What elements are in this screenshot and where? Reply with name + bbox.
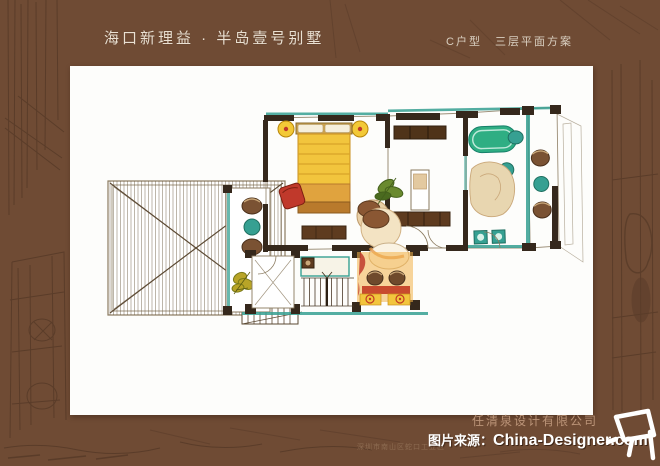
balcony-table (534, 176, 550, 192)
plan-card (70, 66, 593, 415)
staircase (301, 257, 354, 306)
bathroom (468, 125, 527, 244)
page-title: 海口新理益 · 半岛壹号别墅 (104, 27, 324, 48)
utility-room (252, 256, 294, 308)
floor-plan-drawing (70, 66, 593, 415)
stool (389, 271, 405, 285)
balcony-table (244, 219, 260, 235)
tea-room (357, 252, 413, 305)
door-swing (406, 226, 428, 248)
design-company-name: 任清泉设计有限公司 (0, 412, 598, 429)
table-runner (362, 286, 410, 294)
rear-balcony (531, 150, 551, 219)
balcony-chair (242, 198, 262, 214)
dresser (302, 226, 346, 239)
hall-bench (411, 170, 429, 210)
stool (367, 271, 383, 285)
toilet (508, 131, 523, 145)
scheme-label: C户型 三层平面方案 (446, 33, 573, 49)
presentation-page: 海口新理益 · 半岛壹号别墅 C户型 三层平面方案 (0, 0, 660, 466)
spa-bed (469, 161, 516, 217)
wardrobe (394, 126, 446, 139)
china-designer-logo-icon (600, 402, 658, 464)
watermark-prefix: 图片来源： (428, 433, 493, 448)
